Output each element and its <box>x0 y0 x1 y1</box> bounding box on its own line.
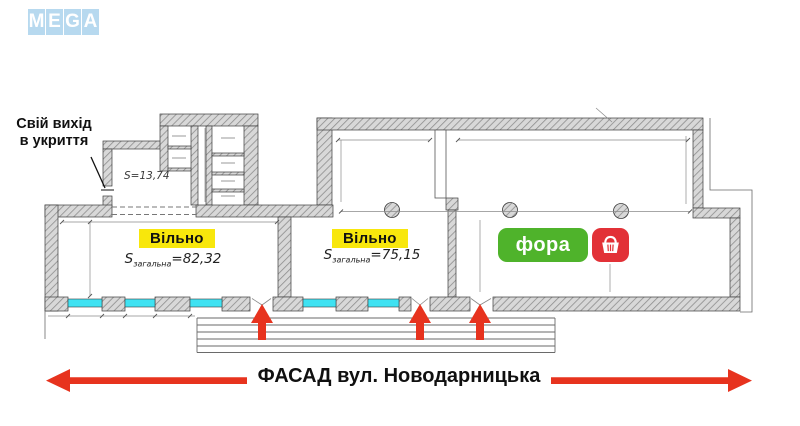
entrance-arrow-icon <box>469 304 491 340</box>
mega-logo-letter: M <box>28 9 45 35</box>
area-value: =82,32 <box>171 251 221 267</box>
mega-logo: M E G A <box>28 9 99 35</box>
mega-logo-letter: E <box>46 9 63 35</box>
area-symbol: S <box>324 247 333 263</box>
area-subscript: загальна <box>332 256 370 265</box>
shelter-exit-note-line1: Свій вихід <box>8 116 100 133</box>
small-room-marks <box>172 136 235 196</box>
mega-logo-letter: A <box>82 9 99 35</box>
light-partition <box>435 130 446 198</box>
shelter-exit-note-line2: в укриття <box>8 133 100 150</box>
facade-arrow-left-icon <box>46 369 247 392</box>
space2-status-badge: Вільно <box>332 229 408 248</box>
small-room-area-label: S=13,74 <box>124 170 170 182</box>
entrance-stairs <box>197 318 555 353</box>
facade-street-title: ФАСАД вул. Новодарницька <box>247 365 551 388</box>
fora-logo: фора <box>498 228 588 262</box>
floor-plan-drawing <box>0 0 800 426</box>
area-value: =75,15 <box>370 247 420 263</box>
fora-basket-badge <box>592 228 629 262</box>
area-subscript: загальна <box>133 260 171 269</box>
mega-logo-letter: G <box>64 9 81 35</box>
entrance-arrow-icon <box>251 304 273 340</box>
fora-logo-text: фора <box>516 234 571 257</box>
dashed-opening <box>112 207 196 215</box>
space2-area-label: Sзагальна=75,15 <box>316 247 428 265</box>
shelter-exit-note: Свій вихід в укриття <box>8 116 100 150</box>
dimension-lines <box>48 108 692 318</box>
facade-arrow-right-icon <box>551 369 752 392</box>
floor-plan-page: M E G A Свій вихід в укриття S=13,74 Віл… <box>0 0 800 426</box>
space1-area-label: Sзагальна=82,32 <box>117 251 229 269</box>
shopping-basket-icon <box>600 235 621 255</box>
columns <box>385 203 629 219</box>
entrance-arrow-icon <box>409 304 431 340</box>
area-symbol: S <box>125 251 134 267</box>
space1-status-badge: Вільно <box>139 229 215 248</box>
